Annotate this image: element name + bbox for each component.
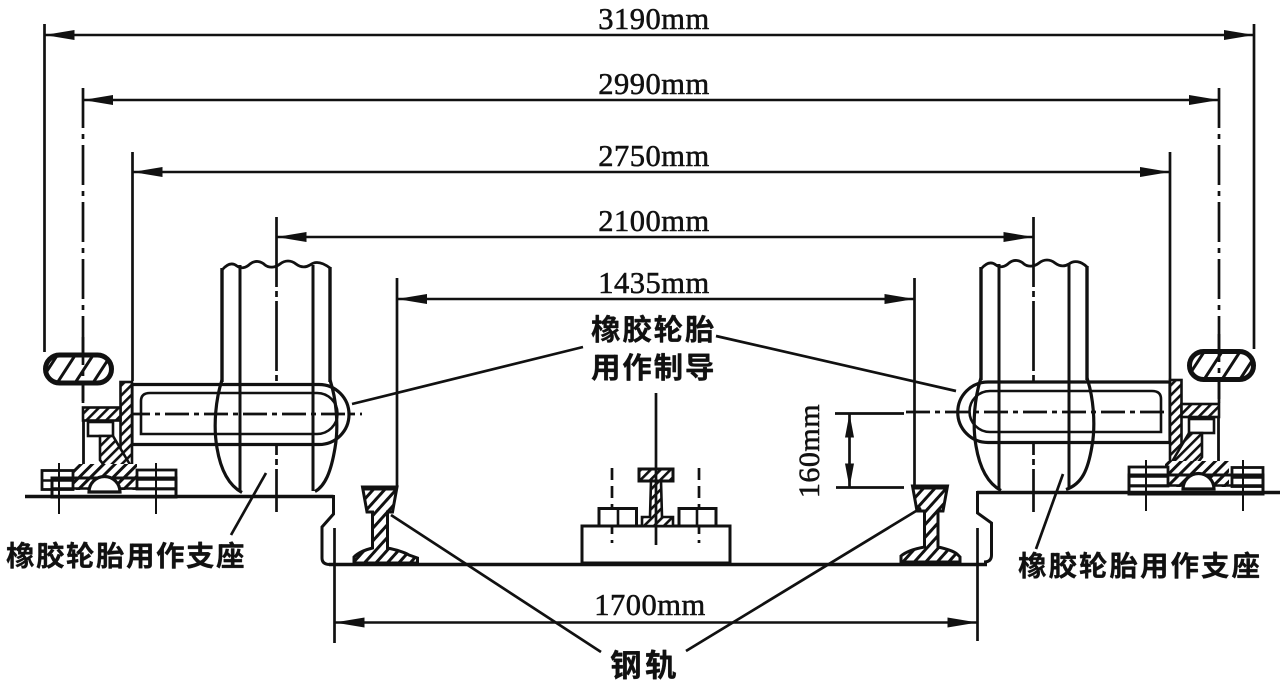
svg-text:1435mm: 1435mm: [598, 266, 709, 300]
svg-text:160mm: 160mm: [793, 404, 826, 498]
svg-text:2990mm: 2990mm: [598, 67, 709, 101]
svg-text:2100mm: 2100mm: [598, 204, 709, 238]
svg-text:3190mm: 3190mm: [598, 2, 709, 36]
svg-text:1700mm: 1700mm: [594, 588, 705, 622]
svg-text:2750mm: 2750mm: [598, 139, 709, 173]
